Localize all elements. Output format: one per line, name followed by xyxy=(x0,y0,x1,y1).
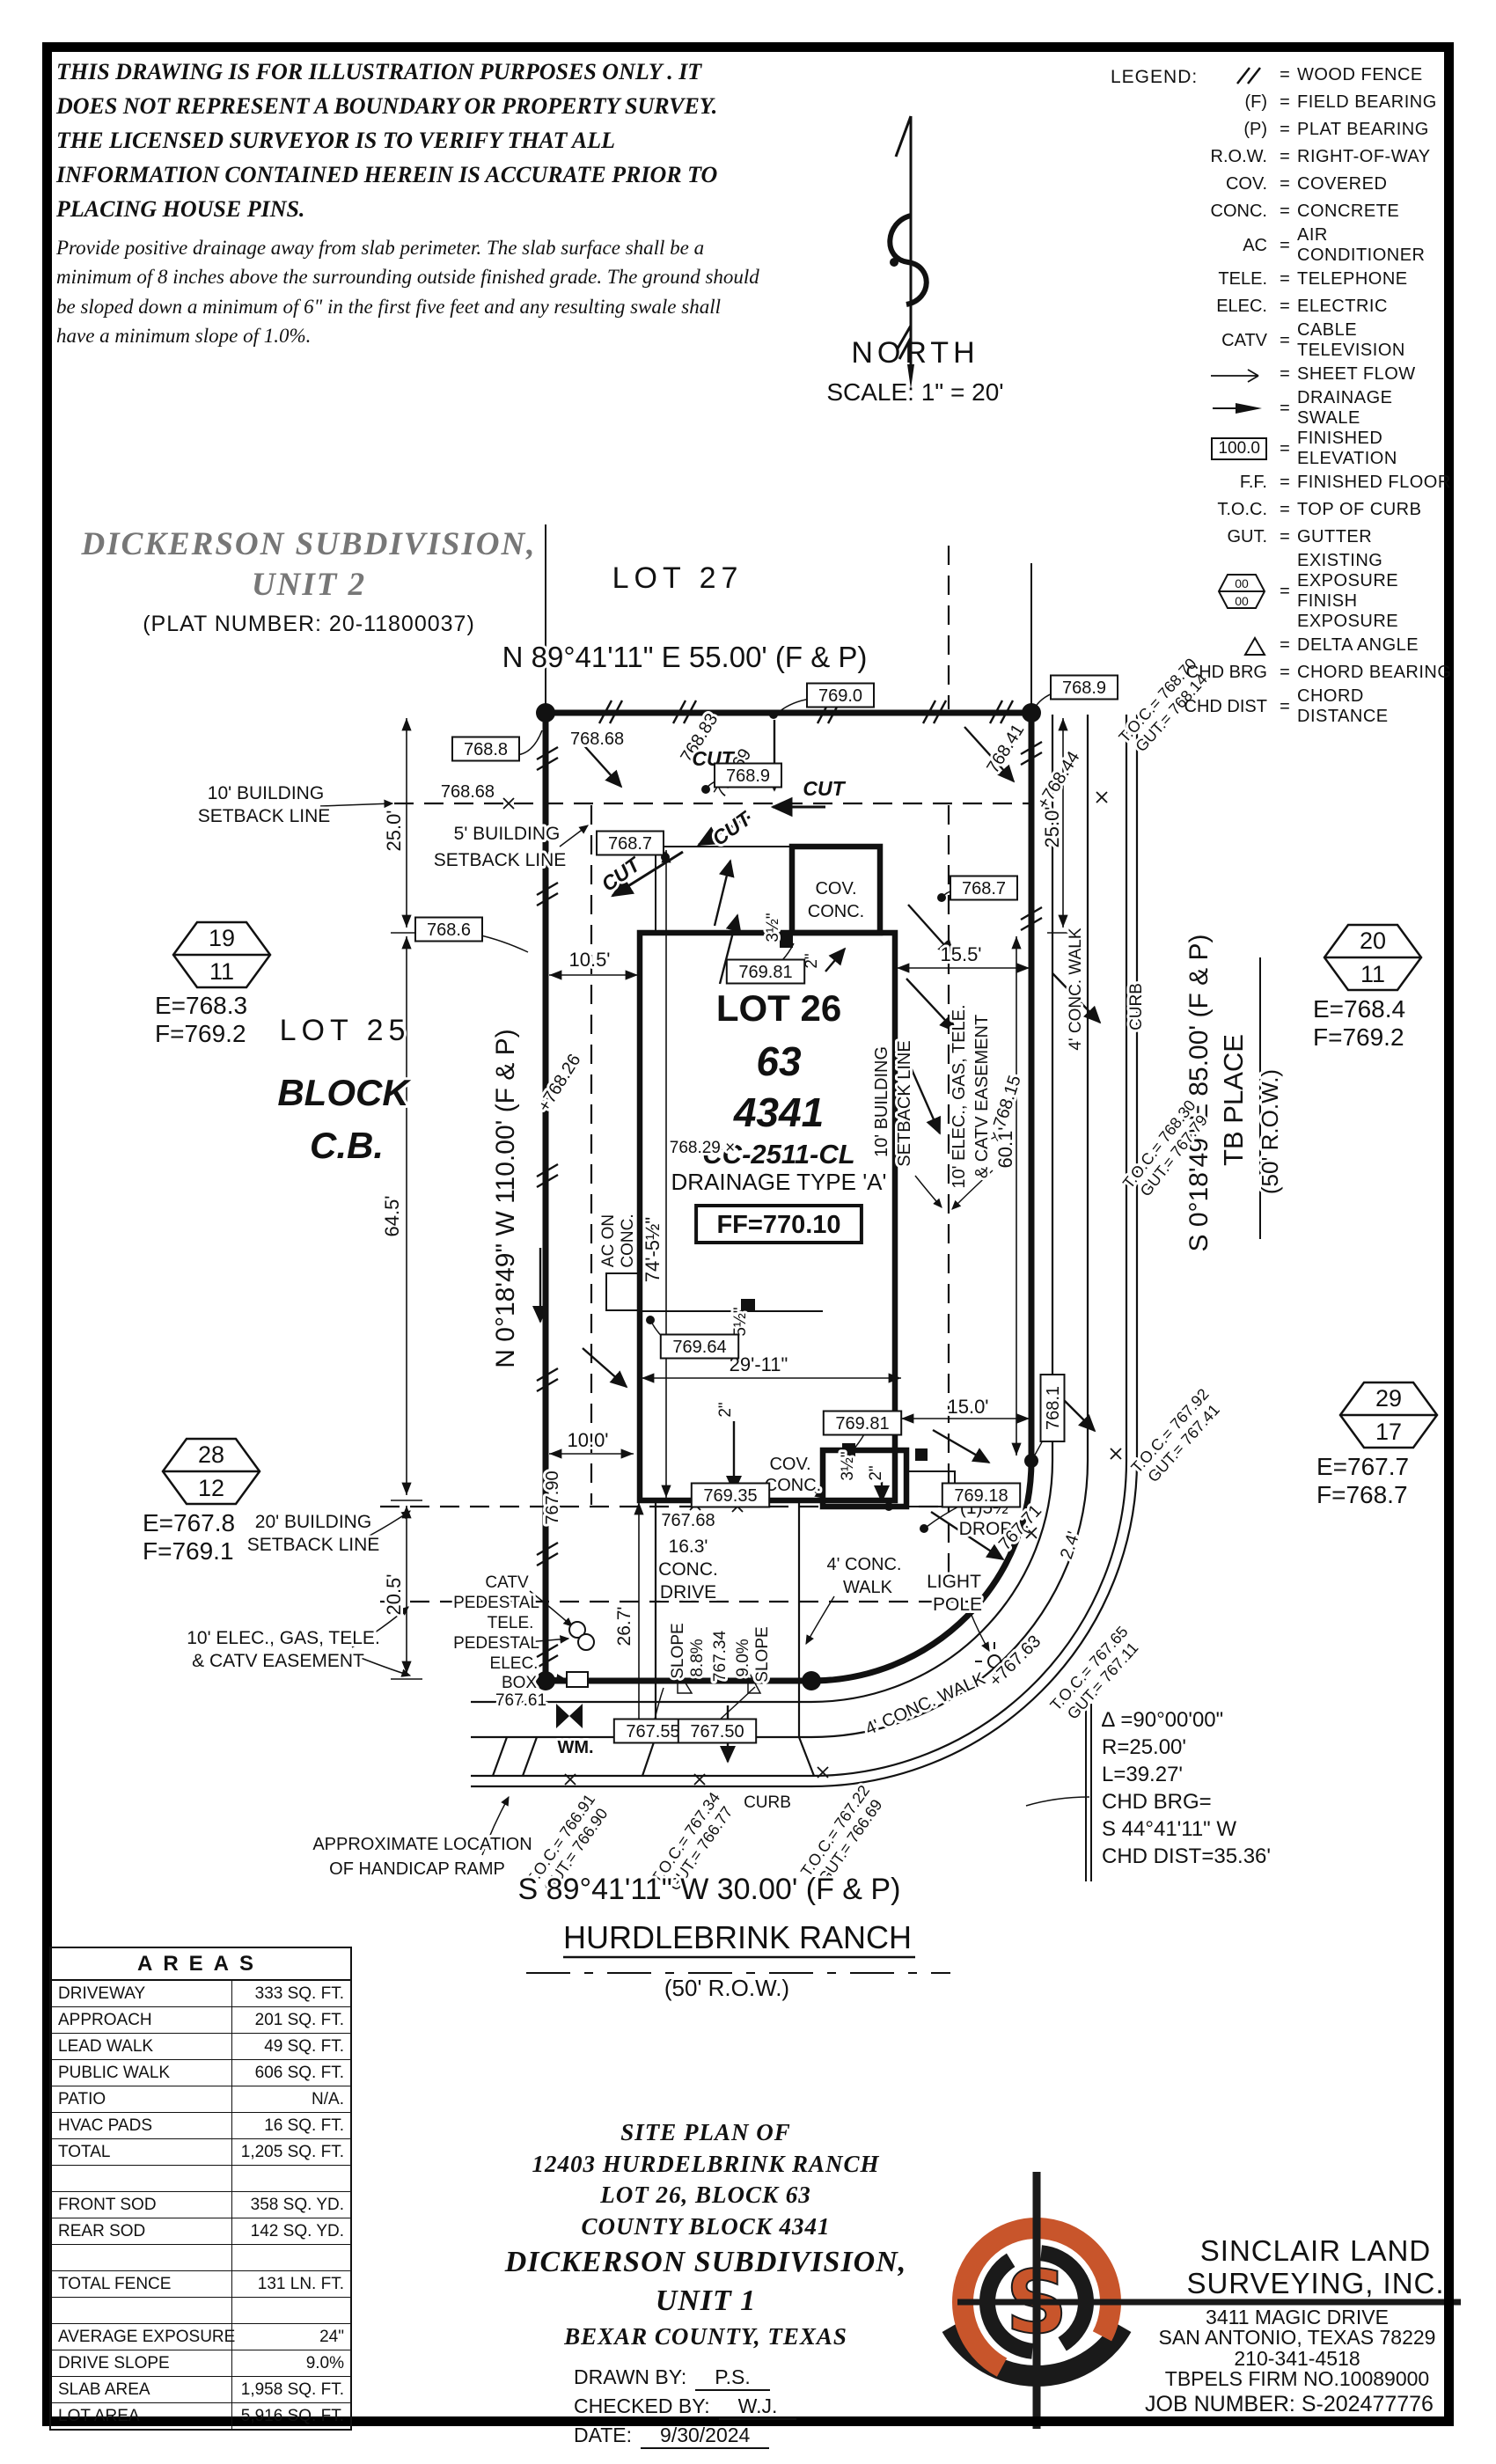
surveyor-street: 3411 MAGIC DRIVE xyxy=(1133,2307,1461,2328)
plan-label: 25.0' xyxy=(383,810,405,851)
plan-label: CUT xyxy=(803,777,846,800)
svg-text:19: 19 xyxy=(209,925,235,951)
plan-label: SETBACK LINE xyxy=(198,806,331,826)
plan-label: LIGHT xyxy=(927,1572,981,1592)
svg-text:00: 00 xyxy=(1235,576,1249,590)
areas-row-value: 142 SQ. YD. xyxy=(232,2218,350,2244)
exposure-elevation-label: E=767.7 xyxy=(1316,1453,1409,1480)
exposure-hexagon: 1911 xyxy=(173,922,270,987)
plan-label: (50' R.O.W.) xyxy=(1257,1069,1283,1194)
plan-label: SETBACK LINE xyxy=(434,850,567,870)
legend-row: COV.=COVERED xyxy=(1107,171,1459,198)
plan-label: ELEC. xyxy=(490,1654,539,1673)
legend-label: TELEPHONE xyxy=(1297,269,1459,290)
plan-label: CUT xyxy=(708,806,757,850)
field-value: P.S. xyxy=(695,2365,770,2391)
svg-text:00: 00 xyxy=(1235,594,1249,608)
areas-row-label xyxy=(51,2298,232,2323)
surveyor-name-line1: SINCLAIR LAND xyxy=(1170,2235,1461,2268)
plan-label: 15.5' xyxy=(940,943,981,965)
plan-label: & CATV EASEMENT xyxy=(972,1015,992,1178)
legend-symbol: (P) xyxy=(1107,120,1272,140)
title-block-field: CHECKED BY:W.J. xyxy=(574,2394,926,2420)
areas-row-value: 1,958 SQ. FT. xyxy=(232,2377,350,2402)
plan-label: TB PLACE xyxy=(1218,1034,1249,1166)
legend-label: TOP OF CURB xyxy=(1297,500,1459,520)
plan-label: 3½" xyxy=(764,913,782,942)
plan-label: SETBACK LINE xyxy=(895,1040,914,1166)
plan-label: 8.8% xyxy=(688,1639,707,1676)
areas-row-label: AVERAGE EXPOSURE xyxy=(51,2324,232,2350)
plan-label: BOX xyxy=(502,1674,537,1692)
legend-row: CONC.=CONCRETE xyxy=(1107,198,1459,225)
plan-label: SLOPE xyxy=(669,1623,687,1678)
areas-row-value: 131 LN. FT. xyxy=(232,2271,350,2297)
areas-row-label: TOTAL xyxy=(51,2139,232,2165)
areas-row: HVAC PADS16 SQ. FT. xyxy=(51,2113,350,2139)
plan-label: 10' ELEC., GAS, TELE. xyxy=(187,1628,380,1648)
disclaimer-paragraph-2: Provide positive drainage away from slab… xyxy=(56,233,760,350)
areas-row: PATION/A. xyxy=(51,2086,350,2113)
plan-label: 16.3' xyxy=(669,1536,708,1557)
legend-symbol: CHD BRG xyxy=(1107,663,1272,683)
plan-label: AC ON xyxy=(599,1214,618,1267)
legend-row: =DRAINAGE SWALE xyxy=(1107,388,1459,429)
site-plan-page: LOT 27N 89°41'11" E 55.00' (F & P)768.68… xyxy=(0,0,1496,2464)
svg-text:768.1: 768.1 xyxy=(1044,1386,1063,1430)
areas-row-label: REAR SOD xyxy=(51,2218,232,2244)
plan-label: & CATV EASEMENT xyxy=(192,1651,364,1671)
title-block-line: UNIT 1 xyxy=(486,2282,926,2321)
areas-row-value: 358 SQ. YD. xyxy=(232,2192,350,2218)
plan-label: CONC. xyxy=(658,1559,718,1580)
drainage-swale-icon xyxy=(1209,400,1267,416)
legend-symbol: GUT. xyxy=(1107,527,1272,547)
title-block-line: COUNTY BLOCK 4341 xyxy=(486,2211,926,2243)
svg-text:20: 20 xyxy=(1360,928,1386,954)
areas-row-label: DRIVEWAY xyxy=(51,1981,232,2006)
legend-row: CATV=CABLE TELEVISION xyxy=(1107,320,1459,361)
plan-label: 768.41 xyxy=(983,721,1028,777)
areas-row-label: HVAC PADS xyxy=(51,2113,232,2138)
areas-row: LEAD WALK49 SQ. FT. xyxy=(51,2034,350,2060)
legend-label: DRAINAGE SWALE xyxy=(1297,388,1459,429)
legend-row: R.O.W.=RIGHT-OF-WAY xyxy=(1107,143,1459,171)
plan-label: POLE xyxy=(933,1595,982,1615)
plan-label: CATV xyxy=(485,1573,529,1592)
plat-number: (PLAT NUMBER: 20-11800037) xyxy=(58,612,560,637)
plan-label: 15.0' xyxy=(947,1396,988,1418)
plan-label: 4' CONC. xyxy=(827,1555,902,1574)
legend-label: PLAT BEARING xyxy=(1297,120,1459,140)
areas-row-value xyxy=(232,2245,350,2270)
legend-label: RIGHT-OF-WAY xyxy=(1297,147,1459,167)
legend-symbol: F.F. xyxy=(1107,473,1272,493)
areas-row: APPROACH201 SQ. FT. xyxy=(51,2007,350,2034)
legend-label: EXISTING EXPOSUREFINISH EXPOSURE xyxy=(1297,551,1459,632)
areas-row xyxy=(51,2166,350,2192)
plan-label: PEDESTAL xyxy=(453,1634,539,1653)
elevation-box: 768.7 xyxy=(950,876,1017,900)
plan-label: LOT 27 xyxy=(612,561,744,595)
legend-row: 0000=EXISTING EXPOSUREFINISH EXPOSURE xyxy=(1107,551,1459,632)
areas-row xyxy=(51,2245,350,2271)
svg-text:769.18: 769.18 xyxy=(954,1486,1008,1506)
plan-label: CONC. xyxy=(765,1476,821,1495)
areas-row: TOTAL FENCE131 LN. FT. xyxy=(51,2271,350,2298)
legend-row: GUT.=GUTTER xyxy=(1107,524,1459,551)
surveyor-firm: TBPELS FIRM NO.10089000 xyxy=(1133,2369,1461,2389)
disclaimer-block: THIS DRAWING IS FOR ILLUSTRATION PURPOSE… xyxy=(56,55,760,350)
svg-text:17: 17 xyxy=(1375,1419,1402,1445)
plan-label: 63 xyxy=(756,1038,802,1084)
title-block-line: DICKERSON SUBDIVISION, xyxy=(486,2243,926,2283)
exposure-elevation-label: E=768.3 xyxy=(155,992,247,1019)
surveyor-name-line2: SURVEYING, INC. xyxy=(1170,2268,1461,2300)
plan-label: 10' BUILDING xyxy=(208,783,324,803)
plan-label: PEDESTAL xyxy=(453,1594,539,1612)
legend-label: COVERED xyxy=(1297,174,1459,194)
plan-label: COV. xyxy=(815,879,856,898)
legend-symbol xyxy=(1107,367,1272,383)
plan-label: WM. xyxy=(557,1738,593,1757)
plan-label: 768.68 xyxy=(441,782,495,802)
elevation-box: 769.18 xyxy=(942,1484,1020,1507)
elevation-box: 769.64 xyxy=(661,1335,738,1359)
legend-symbol xyxy=(1107,400,1272,416)
areas-row: DRIVE SLOPE9.0% xyxy=(51,2350,350,2377)
svg-text:769.0: 769.0 xyxy=(818,686,862,706)
delta-angle-icon xyxy=(1243,634,1267,657)
areas-row-label: FRONT SOD xyxy=(51,2192,232,2218)
svg-text:769.35: 769.35 xyxy=(703,1486,757,1506)
areas-row-value: 1,205 SQ. FT. xyxy=(232,2139,350,2165)
plan-label: 767.90 xyxy=(543,1470,562,1524)
title-block-field: DRAWN BY:P.S. xyxy=(574,2365,926,2391)
legend-symbol: 100.0 xyxy=(1107,437,1272,460)
plan-label: 4341 xyxy=(733,1089,824,1135)
plan-label: CURB xyxy=(1127,983,1146,1030)
legend-symbol: AC xyxy=(1107,236,1272,256)
field-value: 9/30/2024 xyxy=(641,2424,769,2449)
field-label: DRAWN BY: xyxy=(574,2365,686,2388)
plan-label: 3½" xyxy=(839,1451,857,1480)
plan-label: 9.0% xyxy=(734,1639,752,1676)
elevation-box: 767.50 xyxy=(678,1720,756,1743)
areas-row: SLAB AREA1,958 SQ. FT. xyxy=(51,2377,350,2403)
areas-row-value: 24" xyxy=(232,2324,350,2350)
exposure-elevation-label: F=769.2 xyxy=(1313,1023,1404,1051)
plan-label: 768.68 xyxy=(570,730,624,749)
areas-table-title: AREAS xyxy=(51,1948,350,1981)
legend-symbol: (F) xyxy=(1107,92,1272,113)
areas-row: DRIVEWAY333 SQ. FT. xyxy=(51,1981,350,2007)
legend-symbol: CATV xyxy=(1107,331,1272,351)
areas-table: AREAS DRIVEWAY333 SQ. FT.APPROACH201 SQ.… xyxy=(49,1947,352,2431)
svg-text:768.6: 768.6 xyxy=(427,920,471,940)
field-label: DATE: xyxy=(574,2424,632,2446)
exposure-elevation-label: F=768.7 xyxy=(1316,1481,1408,1508)
plan-label: HURDLEBRINK RANCH xyxy=(563,1919,912,1955)
elevation-box: 768.8 xyxy=(452,737,519,761)
areas-row-value: 49 SQ. FT. xyxy=(232,2034,350,2059)
legend-title: LEGEND: xyxy=(1111,67,1198,88)
plan-label: 74'-5½" xyxy=(642,1217,664,1282)
finished-elevation-icon: 100.0 xyxy=(1211,437,1267,460)
plan-label: 5' BUILDING xyxy=(454,824,561,844)
plan-label: CONC. xyxy=(808,902,864,921)
plan-label: 10.0' xyxy=(567,1429,608,1451)
elevation-box: 768.1 xyxy=(1041,1375,1065,1441)
svg-text:28: 28 xyxy=(198,1441,224,1468)
legend-symbol: 0000 xyxy=(1107,572,1272,611)
exposure-hexagon: 2917 xyxy=(1340,1382,1437,1448)
plan-label: SLOPE xyxy=(753,1626,772,1682)
elevation-box: 769.0 xyxy=(807,684,874,708)
areas-row-label: PATIO xyxy=(51,2086,232,2112)
legend-label: GUTTER xyxy=(1297,527,1459,547)
svg-text:11: 11 xyxy=(209,958,234,985)
plan-label: 60.1' xyxy=(994,1126,1016,1168)
areas-row-value: 201 SQ. FT. xyxy=(232,2007,350,2033)
surveyor-address: 3411 MAGIC DRIVE SAN ANTONIO, TEXAS 7822… xyxy=(1133,2307,1461,2390)
exposure-hexagon: 2812 xyxy=(163,1439,260,1504)
wood-fence-icon xyxy=(1227,65,1267,86)
surveyor-name: SINCLAIR LAND SURVEYING, INC. xyxy=(1170,2235,1461,2300)
subdivision-unit: UNIT 2 xyxy=(58,565,560,605)
svg-text:768.8: 768.8 xyxy=(464,740,508,759)
plan-label: SETBACK LINE xyxy=(247,1535,380,1555)
north-label: NORTH xyxy=(827,336,1003,370)
plan-label: +768.44 xyxy=(1033,748,1083,812)
plan-label: C.B. xyxy=(310,1125,384,1166)
legend-row: =DELTA ANGLE xyxy=(1107,632,1459,659)
legend: LEGEND: =WOOD FENCE(F)=FIELD BEARING(P)=… xyxy=(1107,62,1459,727)
legend-label: FINISHED ELEVATION xyxy=(1297,429,1459,469)
disclaimer-paragraph-1: THIS DRAWING IS FOR ILLUSTRATION PURPOSE… xyxy=(56,55,760,226)
areas-row-label xyxy=(51,2166,232,2191)
areas-row-value: 606 SQ. FT. xyxy=(232,2060,350,2086)
areas-row-label: PUBLIC WALK xyxy=(51,2060,232,2086)
svg-text:767.55: 767.55 xyxy=(626,1722,679,1742)
svg-text:768.9: 768.9 xyxy=(1062,678,1106,698)
plan-label: S 0°18'49" E 85.00' (F & P) xyxy=(1184,935,1214,1252)
plan-label: 10.5' xyxy=(568,949,610,971)
title-block-line: 12403 HURDELBRINK RANCH xyxy=(486,2149,926,2181)
areas-row-label: LEAD WALK xyxy=(51,2034,232,2059)
svg-text:29: 29 xyxy=(1375,1385,1402,1412)
field-value: W.J. xyxy=(719,2394,797,2420)
plan-label: 2" xyxy=(867,1465,885,1480)
exposure-elevation-label: F=769.1 xyxy=(143,1537,234,1565)
elevation-box: 769.35 xyxy=(692,1484,769,1507)
legend-label: CHORD BEARING xyxy=(1297,663,1459,683)
plan-label: (50' R.O.W.) xyxy=(664,1975,789,2001)
surveyor-phone: 210-341-4518 xyxy=(1133,2349,1461,2369)
plan-label: 4' CONC. WALK xyxy=(862,1668,988,1739)
legend-row: (F)=FIELD BEARING xyxy=(1107,89,1459,116)
areas-row-value: 5,916 SQ. FT. xyxy=(232,2403,350,2429)
elevation-box: 769.81 xyxy=(824,1412,901,1435)
scale-label: SCALE: 1" = 20' xyxy=(783,378,1047,407)
legend-row: TELE.=TELEPHONE xyxy=(1107,266,1459,293)
legend-symbol: CHD DIST xyxy=(1107,697,1272,717)
legend-row: CHD DIST=CHORD DISTANCE xyxy=(1107,686,1459,727)
finished-floor-box: FF=770.10 xyxy=(696,1206,862,1243)
areas-row: AVERAGE EXPOSURE24" xyxy=(51,2324,350,2350)
plan-label: 25.0' xyxy=(1041,806,1063,847)
areas-row xyxy=(51,2298,350,2324)
legend-symbol: COV. xyxy=(1107,174,1272,194)
legend-label: DELTA ANGLE xyxy=(1297,635,1459,656)
elevation-box: 768.6 xyxy=(415,918,482,942)
plan-label: 5½" xyxy=(731,1307,750,1336)
exposure-elevation-label: F=769.2 xyxy=(155,1020,246,1047)
plan-label: CONC. xyxy=(619,1214,637,1267)
legend-row: F.F.=FINISHED FLOOR xyxy=(1107,469,1459,496)
legend-label: WOOD FENCE xyxy=(1297,65,1459,85)
areas-row-value: N/A. xyxy=(232,2086,350,2112)
plan-label: DRIVE xyxy=(660,1582,716,1602)
svg-text:769.81: 769.81 xyxy=(738,963,792,982)
legend-row: CHD BRG=CHORD BEARING xyxy=(1107,659,1459,686)
plan-label: 767.34 xyxy=(711,1631,730,1683)
title-block-line: LOT 26, BLOCK 63 xyxy=(486,2180,926,2211)
plan-label: 767.61 xyxy=(495,1691,546,1710)
plan-label: 2.4' xyxy=(1057,1529,1084,1562)
svg-text:FF=770.10: FF=770.10 xyxy=(716,1211,840,1239)
plan-label: BLOCK xyxy=(277,1072,411,1113)
areas-row-label: SLAB AREA xyxy=(51,2377,232,2402)
plan-label: N 89°41'11" E 55.00' (F & P) xyxy=(502,641,868,673)
plan-label: 4' CONC. WALK xyxy=(1067,928,1085,1050)
legend-label: CONCRETE xyxy=(1297,202,1459,222)
job-number: JOB NUMBER: S-202477776 xyxy=(1118,2392,1461,2417)
legend-symbol: T.O.C. xyxy=(1107,500,1272,520)
legend-symbol: R.O.W. xyxy=(1107,147,1272,167)
areas-row-label: TOTAL FENCE xyxy=(51,2271,232,2297)
areas-row: LOT AREA5,916 SQ. FT. xyxy=(51,2403,350,2429)
legend-row: ELEC.=ELECTRIC xyxy=(1107,293,1459,320)
lot-line-extensions xyxy=(546,524,1031,709)
svg-text:767.50: 767.50 xyxy=(690,1722,744,1742)
plan-label: LOT 25 xyxy=(280,1014,411,1047)
plan-label: 767.68 xyxy=(661,1511,715,1530)
elevation-box: 768.7 xyxy=(597,832,664,855)
legend-row: 100.0=FINISHED ELEVATION xyxy=(1107,429,1459,469)
plan-label: 768.29 × xyxy=(670,1139,736,1157)
plan-label: CURB xyxy=(744,1793,791,1812)
legend-label: CHORD DISTANCE xyxy=(1297,686,1459,727)
plan-label: 2" xyxy=(716,1402,735,1417)
plan-label: 64.5' xyxy=(381,1195,403,1236)
plan-label: N 0°18'49" W 110.00' (F & P) xyxy=(491,1029,520,1368)
plan-label: 10' BUILDING xyxy=(872,1046,891,1157)
areas-row: REAR SOD142 SQ. YD. xyxy=(51,2218,350,2245)
exposure-elevation-label: E=767.8 xyxy=(143,1509,235,1536)
plan-label: S 89°41'11" W 30.00' (F & P) xyxy=(518,1873,901,1906)
plan-label: WALK xyxy=(843,1578,893,1597)
field-label: CHECKED BY: xyxy=(574,2394,710,2417)
areas-row-label: APPROACH xyxy=(51,2007,232,2033)
areas-row-value xyxy=(232,2166,350,2191)
svg-text:769.64: 769.64 xyxy=(672,1338,726,1357)
areas-row: PUBLIC WALK606 SQ. FT. xyxy=(51,2060,350,2086)
legend-label: FINISHED FLOOR xyxy=(1297,473,1459,493)
title-block-line: BEXAR COUNTY, TEXAS xyxy=(486,2321,926,2353)
plan-label: T.O.C.= 767.92GUT.= 767.41 xyxy=(1127,1385,1226,1489)
svg-text:11: 11 xyxy=(1360,961,1385,987)
legend-symbol: CONC. xyxy=(1107,202,1272,222)
plan-label: ∆ =90°00'00"R=25.00'L=39.27'CHD BRG=S 44… xyxy=(1102,1708,1271,1868)
surveyor-city: SAN ANTONIO, TEXAS 78229 xyxy=(1133,2328,1461,2348)
sheet-flow-icon xyxy=(1209,367,1267,383)
areas-row-label: LOT AREA xyxy=(51,2403,232,2429)
areas-row-value: 16 SQ. FT. xyxy=(232,2113,350,2138)
legend-label: ELECTRIC xyxy=(1297,297,1459,317)
areas-row: FRONT SOD358 SQ. YD. xyxy=(51,2192,350,2218)
elevation-box: 768.9 xyxy=(715,764,781,788)
exposure-elevation-label: E=768.4 xyxy=(1313,995,1405,1023)
areas-row-label xyxy=(51,2245,232,2270)
svg-text:768.7: 768.7 xyxy=(962,879,1006,898)
legend-symbol: ELEC. xyxy=(1107,297,1272,317)
legend-label: CABLE TELEVISION xyxy=(1297,320,1459,361)
areas-row-label: DRIVE SLOPE xyxy=(51,2350,232,2376)
legend-symbol xyxy=(1107,634,1272,657)
legend-row: =SHEET FLOW xyxy=(1107,361,1459,388)
areas-row: TOTAL1,205 SQ. FT. xyxy=(51,2139,350,2166)
title-block: SITE PLAN OF12403 HURDELBRINK RANCHLOT 2… xyxy=(486,2117,926,2453)
plan-label: +768.26 xyxy=(534,1051,584,1115)
plan-label: 20' BUILDING xyxy=(255,1512,371,1532)
plan-label: APPROXIMATE LOCATION xyxy=(312,1835,532,1854)
plan-label: DRAINAGE TYPE 'A' xyxy=(671,1169,887,1195)
areas-row-value: 9.0% xyxy=(232,2350,350,2376)
plan-label: TELE. xyxy=(488,1614,534,1632)
svg-text:768.9: 768.9 xyxy=(726,766,770,786)
legend-label: SHEET FLOW xyxy=(1297,364,1459,385)
svg-text:768.7: 768.7 xyxy=(608,834,652,854)
svg-text:769.81: 769.81 xyxy=(835,1414,889,1434)
elec-box-icon xyxy=(567,1672,588,1687)
plan-label: 20.5' xyxy=(383,1573,405,1615)
title-block-field: DATE:9/30/2024 xyxy=(574,2424,926,2449)
exposure-hexagon: 2011 xyxy=(1324,925,1421,990)
legend-row: AC=AIR CONDITIONER xyxy=(1107,225,1459,266)
plan-label: LOT 26 xyxy=(716,987,841,1029)
plan-label: OF HANDICAP RAMP xyxy=(329,1859,505,1879)
legend-symbol: TELE. xyxy=(1107,269,1272,290)
areas-row-value: 333 SQ. FT. xyxy=(232,1981,350,2006)
areas-row-value xyxy=(232,2298,350,2323)
legend-label: AIR CONDITIONER xyxy=(1297,225,1459,266)
elevation-box: 769.81 xyxy=(727,960,804,984)
plan-label: 10' ELEC., GAS, TELE. xyxy=(950,1004,969,1188)
title-block-line: SITE PLAN OF xyxy=(486,2117,926,2149)
legend-row: (P)=PLAT BEARING xyxy=(1107,116,1459,143)
water-meter-icon xyxy=(556,1704,583,1728)
plan-label: COV. xyxy=(769,1455,810,1474)
legend-row: T.O.C.=TOP OF CURB xyxy=(1107,496,1459,524)
plan-label: 26.7' xyxy=(614,1607,634,1646)
legend-label: FIELD BEARING xyxy=(1297,92,1459,113)
tele-pedestal-icon xyxy=(578,1634,594,1650)
svg-text:12: 12 xyxy=(198,1475,224,1501)
subdivision-name: DICKERSON SUBDIVISION, xyxy=(58,524,560,565)
exposure-hexagon-icon: 0000 xyxy=(1216,572,1267,611)
adjacent-subdivision-header: DICKERSON SUBDIVISION, UNIT 2 (PLAT NUMB… xyxy=(58,524,560,637)
